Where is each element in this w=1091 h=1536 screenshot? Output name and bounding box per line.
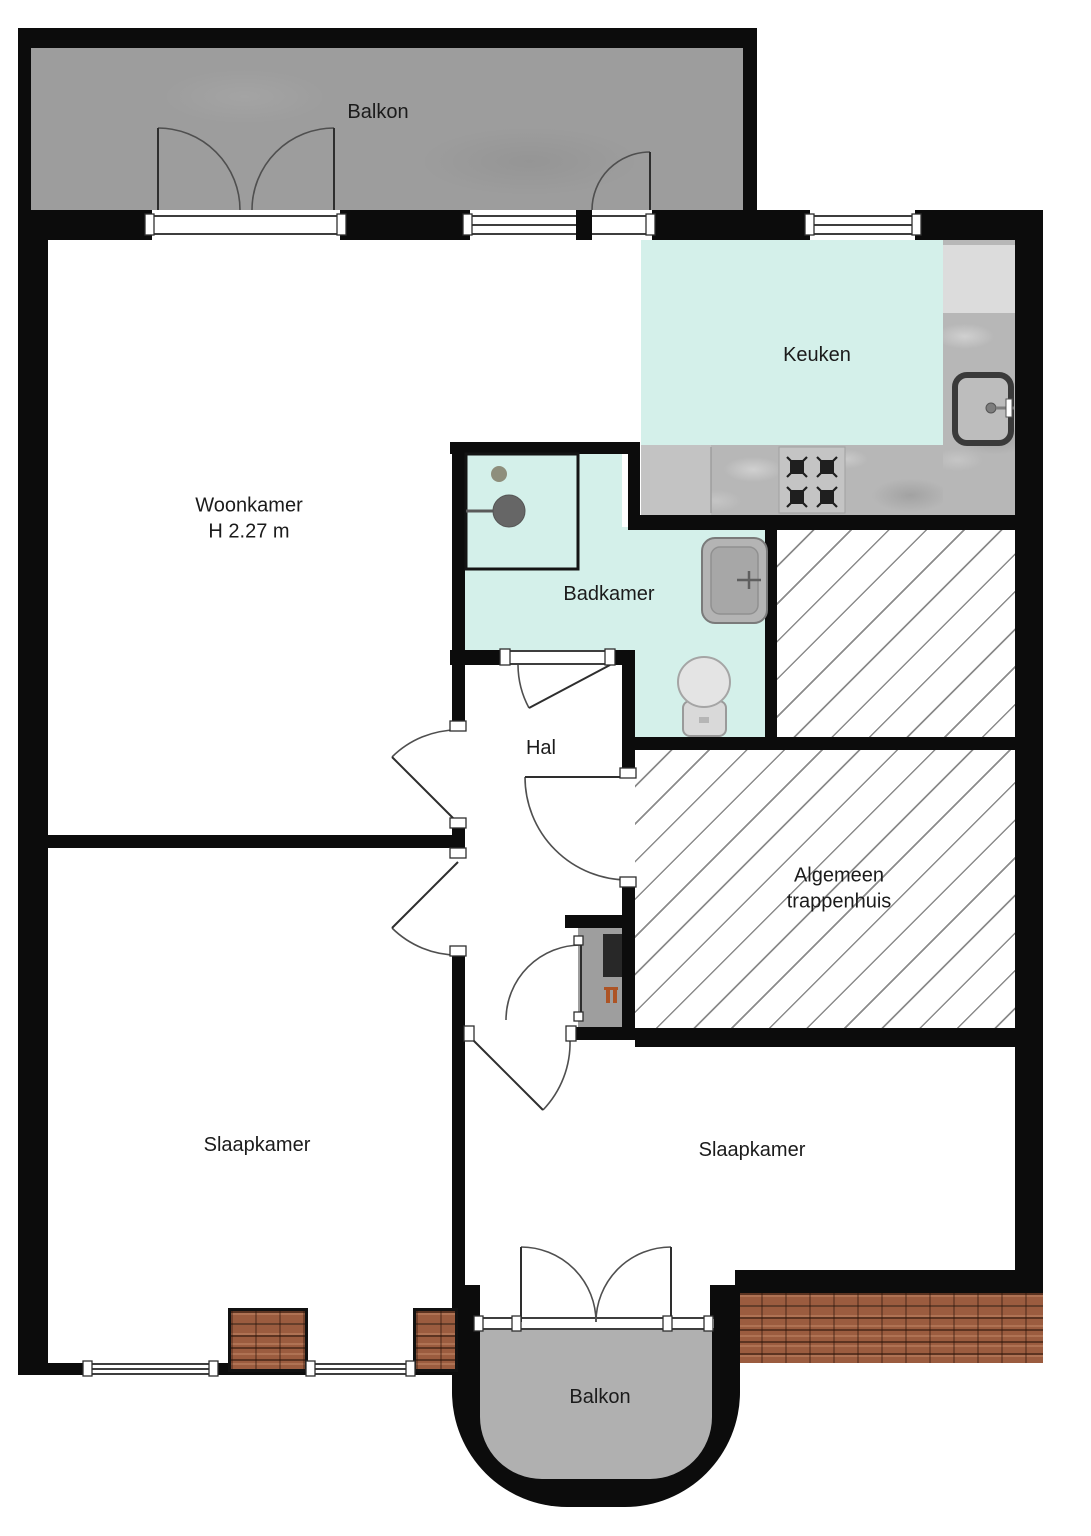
- toilet-icon: [678, 657, 730, 736]
- bedroom-left-door: [392, 862, 458, 955]
- electrical-panel-icon: [603, 934, 622, 1003]
- fixtures-overlay: [0, 0, 1091, 1536]
- living-room-height-note: H 2.27 m: [208, 521, 289, 543]
- meter-cabinet-door: [506, 945, 581, 1020]
- stairwell-label: Algemeen trappenhuis: [787, 863, 892, 916]
- bathroom-door: [518, 665, 610, 708]
- kitchen-label: Keuken: [783, 342, 851, 368]
- balcony-bottom-label: Balkon: [569, 1384, 630, 1410]
- door-jambs: [83, 214, 921, 1376]
- bathroom-label: Badkamer: [563, 581, 654, 607]
- french-doors-bottom: [521, 1247, 671, 1322]
- gas-stove-icon: [779, 447, 845, 513]
- washbasin-icon: [702, 538, 767, 623]
- bedroom-left-label: Slaapkamer: [204, 1132, 311, 1158]
- hall-label: Hal: [526, 735, 556, 761]
- balcony-door-top: [592, 152, 650, 210]
- balcony-top-label: Balkon: [347, 99, 408, 125]
- living-room-label: Woonkamer H 2.27 m: [195, 493, 302, 546]
- entrance-door: [525, 777, 628, 880]
- shower-icon: [466, 454, 578, 569]
- living-room-door: [392, 730, 458, 823]
- bedroom-right-label: Slaapkamer: [699, 1137, 806, 1163]
- french-doors-top: [158, 128, 334, 210]
- kitchen-sink-icon: [955, 375, 1014, 443]
- bedroom-right-door: [473, 1040, 570, 1110]
- floor-plan: Balkon Keuken Woonkamer H 2.27 m Badkame…: [0, 0, 1091, 1536]
